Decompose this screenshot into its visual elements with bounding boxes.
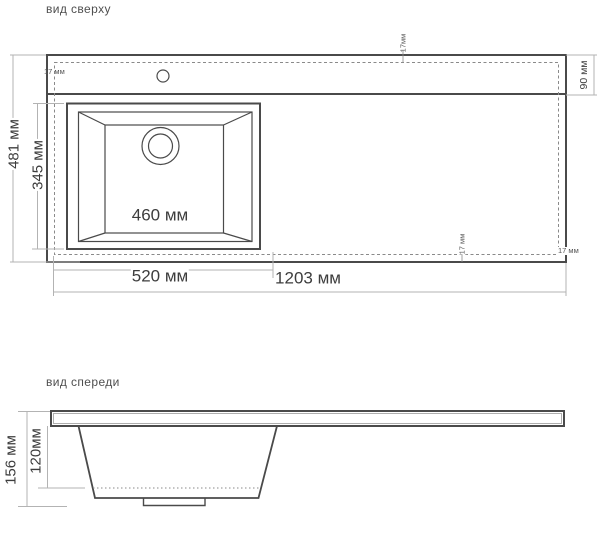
- dim-label-bowl-height: 120мм: [29, 427, 44, 475]
- dim-label-overall-height: 156 мм: [4, 434, 19, 486]
- edge-offset-dashed-outline: [55, 63, 559, 255]
- front-bowl-profile: [79, 426, 278, 498]
- top-view-title: вид сверху: [45, 3, 112, 15]
- offset-leader-lines: [403, 50, 462, 262]
- front-drain-fitting: [144, 498, 206, 506]
- sink-technical-drawing: вид сверху 481 мм 345 мм 17 мм 17мм 90 м…: [0, 0, 600, 533]
- dim-label-bowl-depth: 345 мм: [31, 139, 46, 191]
- dim-label-offset-right: 17 мм: [558, 247, 579, 255]
- dim-label-overall-length: 1203 мм: [274, 270, 342, 287]
- faucet-hole: [157, 70, 169, 82]
- top-view-dimension-lines: [10, 55, 597, 296]
- dim-label-offset-left: 17 мм: [44, 68, 65, 76]
- drain-inner-circle: [149, 134, 173, 158]
- dim-label-overall-depth: 481 мм: [7, 118, 22, 170]
- front-view-drawing: [51, 411, 564, 506]
- dim-label-offset-top: 17мм: [399, 34, 407, 53]
- dim-label-offset-bottom: 17 мм: [458, 234, 466, 255]
- dim-label-cutout-width: 520 мм: [131, 268, 189, 285]
- dim-label-bowl-width: 460 мм: [131, 207, 189, 224]
- top-view-drawing: [47, 55, 566, 262]
- front-view-title: вид спереди: [45, 376, 121, 388]
- dim-label-rear-deck: 90 мм: [579, 59, 590, 90]
- top-view-outline: [47, 55, 566, 262]
- drain-outer-circle: [142, 128, 179, 165]
- drawing-canvas: [0, 0, 600, 533]
- front-slab-inner-line: [54, 414, 562, 424]
- dim-120: [38, 426, 85, 488]
